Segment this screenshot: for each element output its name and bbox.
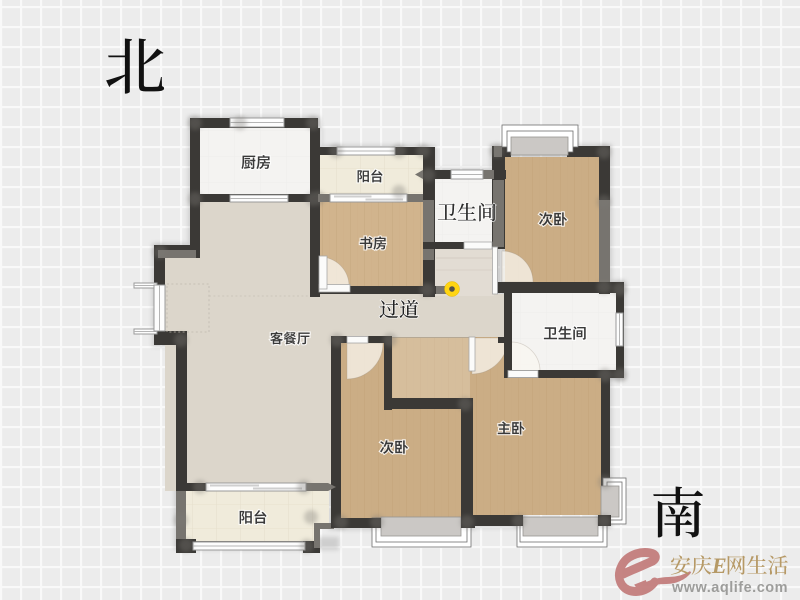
- svg-text:E: E: [711, 553, 727, 578]
- svg-text:www.aqlife.com: www.aqlife.com: [671, 580, 788, 596]
